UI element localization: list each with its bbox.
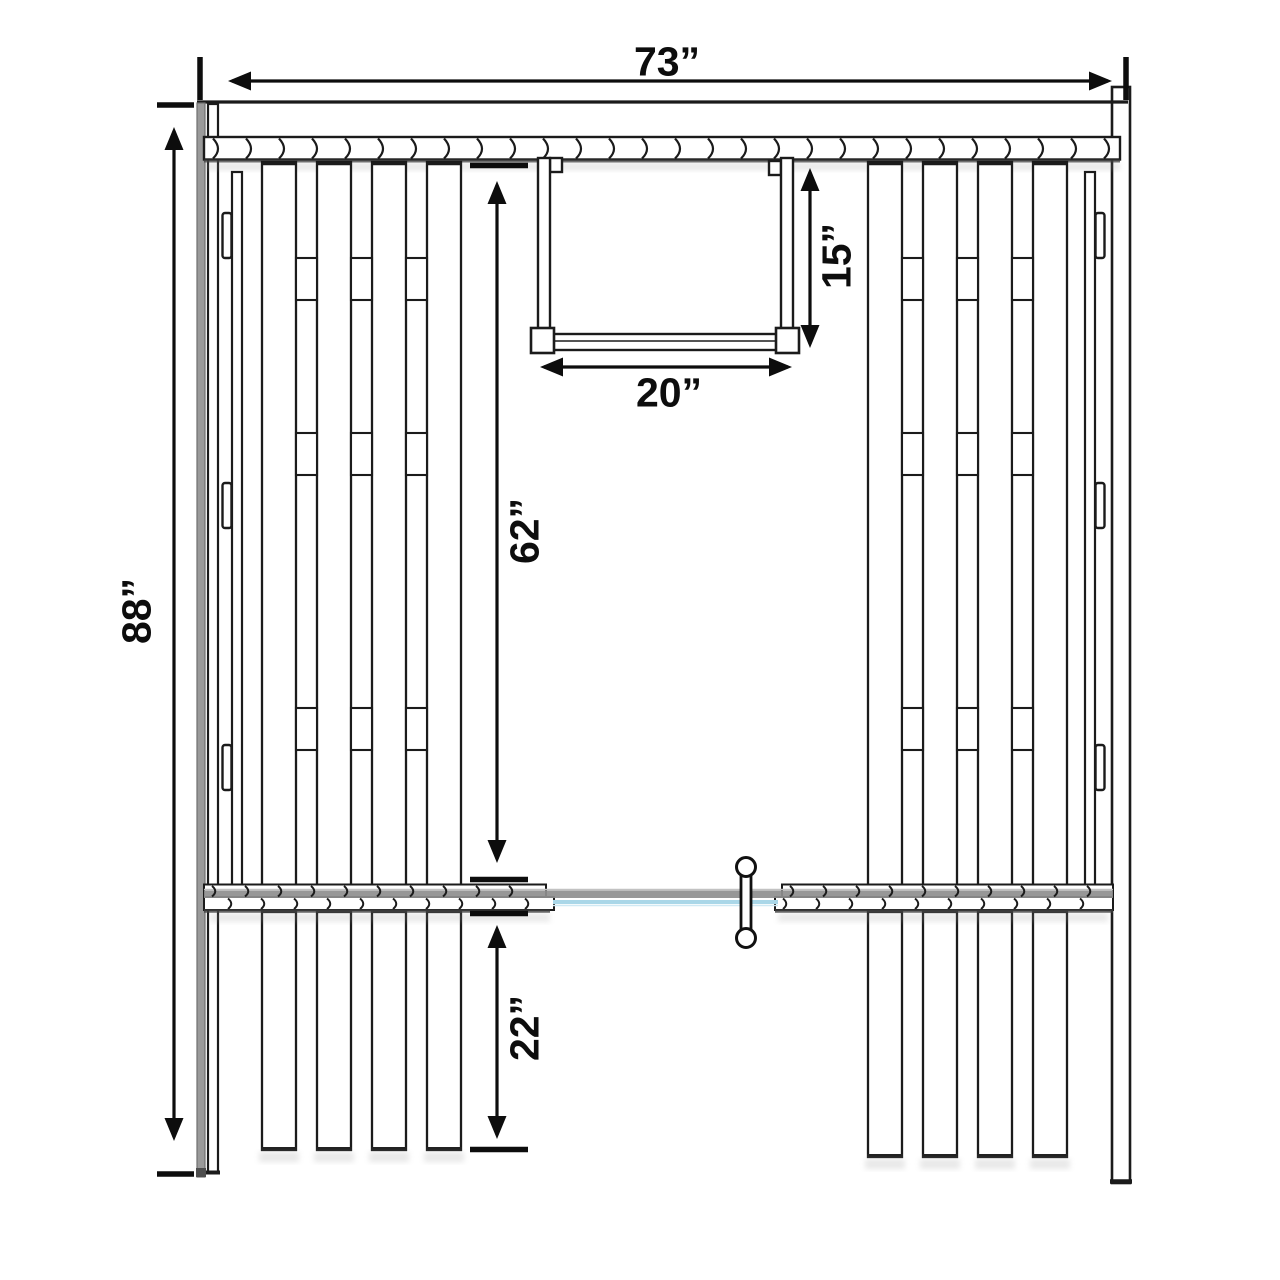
dim-upper-wall-height-label: 62” <box>501 498 547 564</box>
wall-slat-lower <box>427 912 461 1150</box>
hinge-bracket <box>223 483 232 528</box>
top-slat-rail <box>204 137 1120 160</box>
slat-seam <box>351 708 372 750</box>
wall-slat-lower <box>1033 912 1067 1157</box>
wall-slat-upper <box>923 162 957 885</box>
dim-window-width-arrowhead <box>540 358 563 377</box>
hinge-bracket <box>1096 483 1105 528</box>
window-top-bracket-left <box>550 158 562 172</box>
wall-slat-lower <box>262 912 296 1150</box>
slat-seam <box>902 258 923 300</box>
dim-lower-panel-height-label: 22” <box>501 995 547 1061</box>
dim-window-height-label: 15” <box>813 223 859 289</box>
wall-slat-upper <box>262 162 296 885</box>
dim-overall-width-arrowhead <box>1089 72 1112 91</box>
wall-slat-upper <box>317 162 351 885</box>
dim-window-height-arrowhead <box>801 325 820 348</box>
wall-slat-upper <box>1033 162 1067 885</box>
slat-seam <box>406 433 427 475</box>
slat-shadow-smudge <box>424 1152 464 1162</box>
wall-slat-lower <box>317 912 351 1150</box>
dim-window-width-label: 20” <box>636 369 702 415</box>
slat-shadow-smudge <box>314 1152 354 1162</box>
window-assembly <box>531 158 799 353</box>
left-frame-member <box>208 104 218 1173</box>
wall-slat-upper <box>372 162 406 885</box>
hinge-bracket <box>1096 213 1105 258</box>
dim-overall-height-label: 88” <box>113 578 159 644</box>
sill-end-block-right <box>776 328 799 353</box>
panel-structure <box>196 87 1132 1183</box>
slat-shadow-smudge <box>1030 1159 1070 1169</box>
slat-seam <box>1012 433 1033 475</box>
hinge-bracket <box>223 213 232 258</box>
mid-rail-left-lower-row <box>204 897 554 910</box>
slat-seam <box>957 433 978 475</box>
wall-slat-upper <box>427 162 461 885</box>
drawing-canvas: 73”88”62”22”15”20” <box>0 0 1280 1280</box>
slat-shadow-smudge <box>259 1152 299 1162</box>
dim-upper-wall-height-arrowhead <box>488 181 507 204</box>
dim-upper-wall-height-arrowhead <box>488 840 507 863</box>
slat-seam <box>957 258 978 300</box>
wall-slat-upper <box>978 162 1012 885</box>
wall-slat-upper <box>868 162 902 885</box>
dim-window-height-arrowhead <box>801 168 820 191</box>
hinge-bracket <box>1096 745 1105 790</box>
slat-seam <box>406 708 427 750</box>
slat-shadow-smudge <box>920 1159 960 1169</box>
dim-overall-width-label: 73” <box>634 38 700 84</box>
door-handle-knob-bottom <box>737 929 756 948</box>
wall-slat-lower <box>923 912 957 1157</box>
slat-seam <box>902 708 923 750</box>
slat-seam <box>296 258 317 300</box>
slat-seam <box>1012 708 1033 750</box>
window-top-bracket-right <box>769 161 781 175</box>
slat-seam <box>1012 258 1033 300</box>
slat-seam <box>296 433 317 475</box>
wall-slat-lower <box>868 912 902 1157</box>
left-gray-post <box>197 103 205 1177</box>
top-plate <box>197 101 1126 137</box>
door-handle-knob-top <box>737 858 756 877</box>
slat-seam <box>351 258 372 300</box>
slat-shadow-smudge <box>975 1159 1015 1169</box>
door-top-track <box>204 891 1113 899</box>
edge-slat-upper <box>1085 172 1095 885</box>
wall-slat-lower <box>372 912 406 1150</box>
slat-shadow-smudge <box>369 1152 409 1162</box>
dim-overall-height-arrowhead <box>165 127 184 150</box>
slat-seam <box>351 433 372 475</box>
mid-rail-right-lower-row <box>775 897 1113 910</box>
window-left-jamb <box>538 158 550 338</box>
dim-lower-panel-height-arrowhead <box>488 1116 507 1139</box>
dim-lower-panel-height-arrowhead <box>488 925 507 948</box>
middle-rail <box>204 885 1113 923</box>
left-gray-post-foot <box>196 1168 206 1177</box>
dim-overall-width-arrowhead <box>228 72 251 91</box>
edge-slat-upper <box>232 172 242 885</box>
slat-seam <box>406 258 427 300</box>
hinge-bracket <box>223 745 232 790</box>
slat-seam <box>902 433 923 475</box>
wall-slats <box>232 162 1095 1169</box>
slat-shadow-smudge <box>865 1159 905 1169</box>
slat-seam <box>957 708 978 750</box>
sill-end-block-left <box>531 328 554 353</box>
right-post <box>1112 87 1130 1183</box>
window-right-jamb <box>781 158 793 338</box>
door-handle-bar <box>741 872 751 932</box>
dim-window-width-arrowhead <box>769 358 792 377</box>
mid-rail-shadow-smudge-right <box>778 913 1108 922</box>
panel-dimension-drawing: 73”88”62”22”15”20” <box>0 0 1280 1280</box>
slat-seam <box>296 708 317 750</box>
dim-overall-height-arrowhead <box>165 1118 184 1141</box>
window-sill <box>533 334 797 350</box>
wall-slat-lower <box>978 912 1012 1157</box>
